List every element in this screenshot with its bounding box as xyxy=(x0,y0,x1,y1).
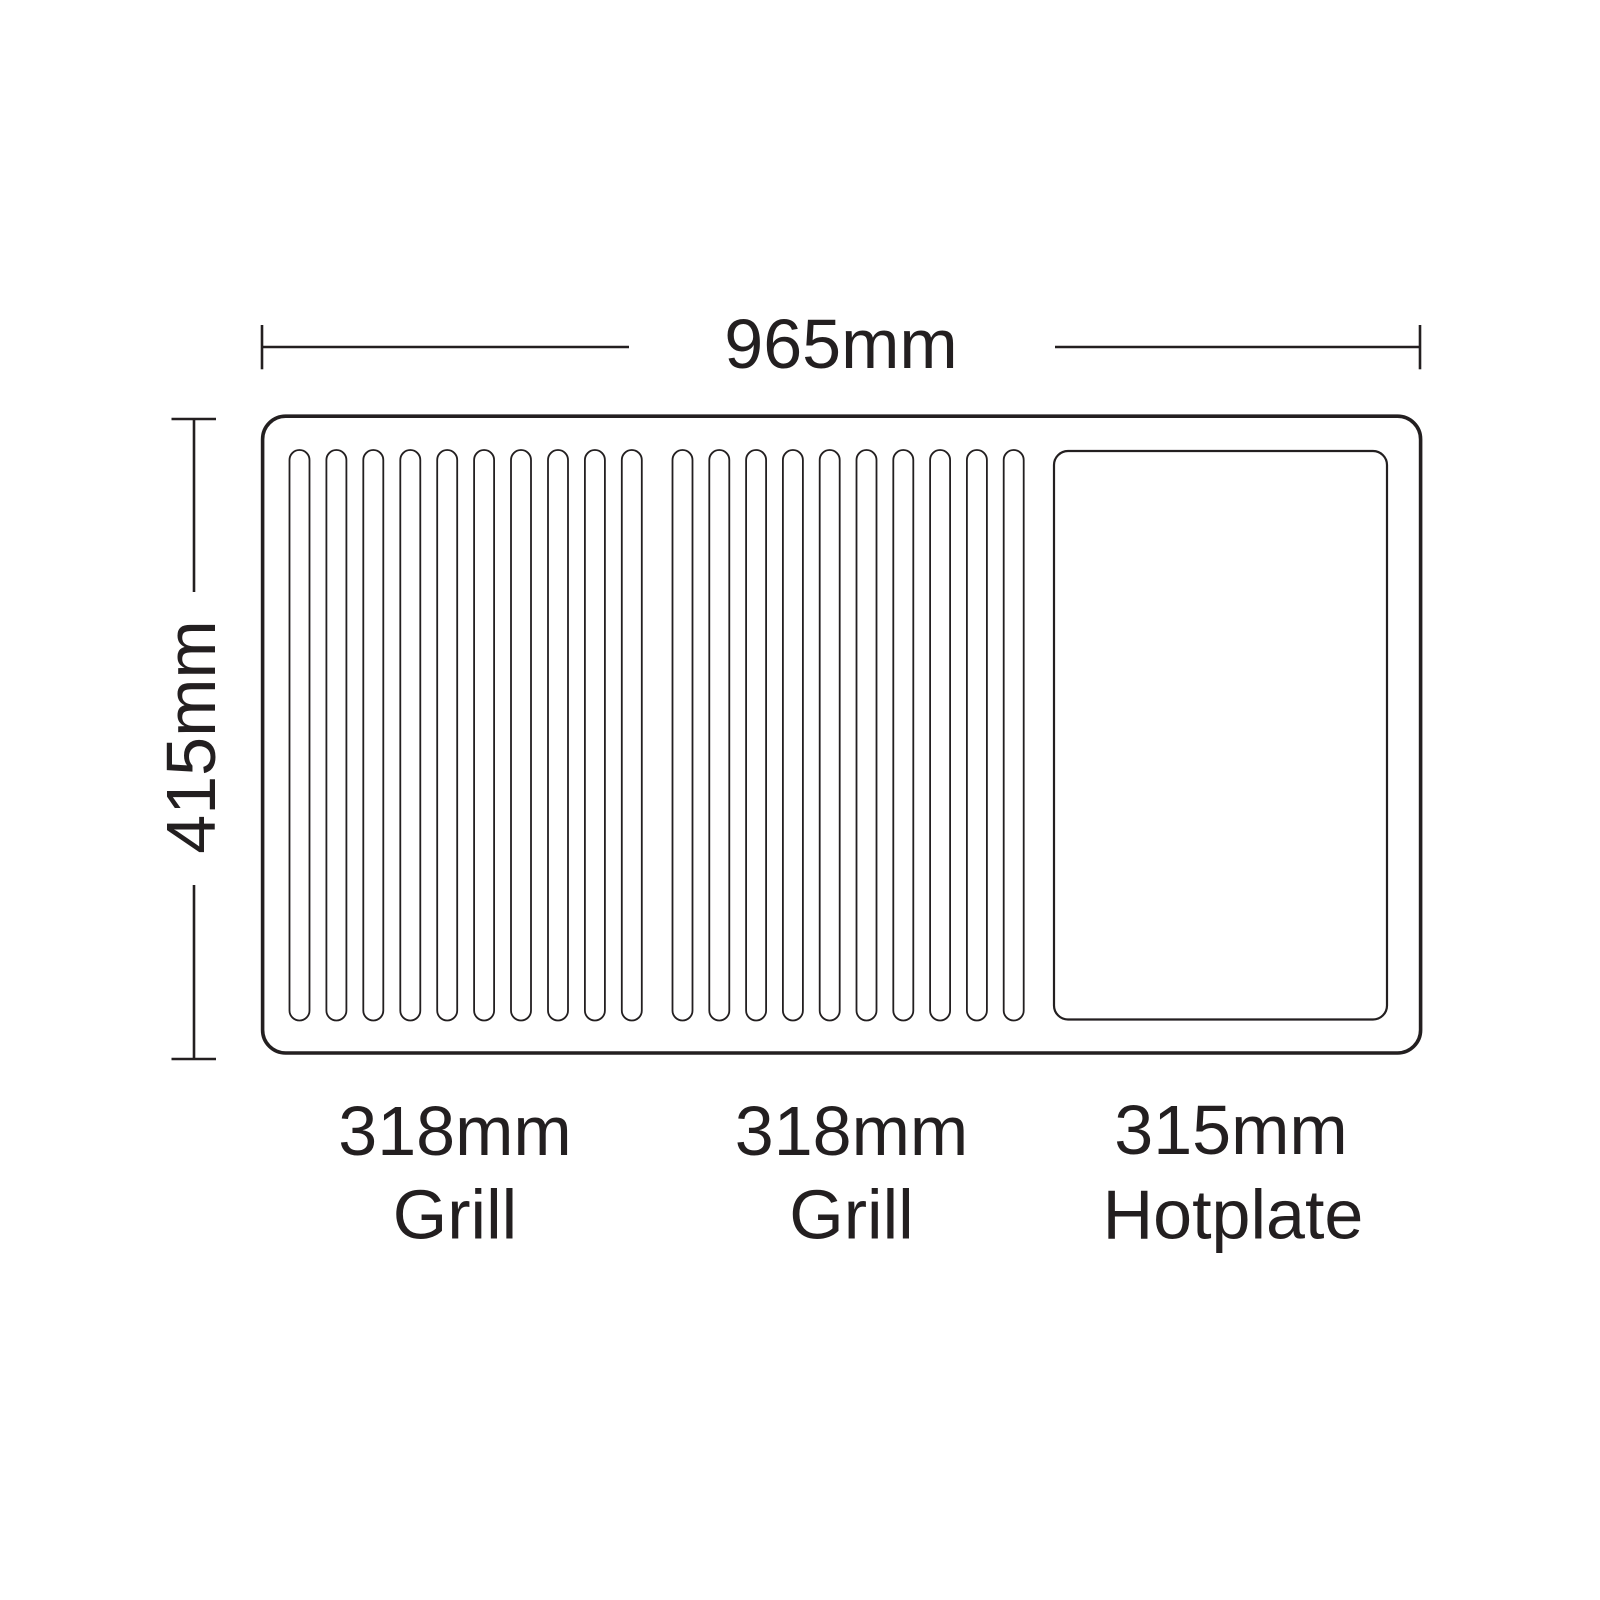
svg-text:Hotplate: Hotplate xyxy=(1103,1176,1364,1254)
svg-text:Grill: Grill xyxy=(393,1176,517,1254)
svg-text:415mm: 415mm xyxy=(152,620,230,853)
svg-text:318mm: 318mm xyxy=(338,1092,571,1170)
svg-text:Grill: Grill xyxy=(789,1176,913,1254)
svg-text:315mm: 315mm xyxy=(1114,1091,1347,1169)
svg-text:318mm: 318mm xyxy=(735,1092,968,1170)
svg-text:965mm: 965mm xyxy=(724,305,957,383)
